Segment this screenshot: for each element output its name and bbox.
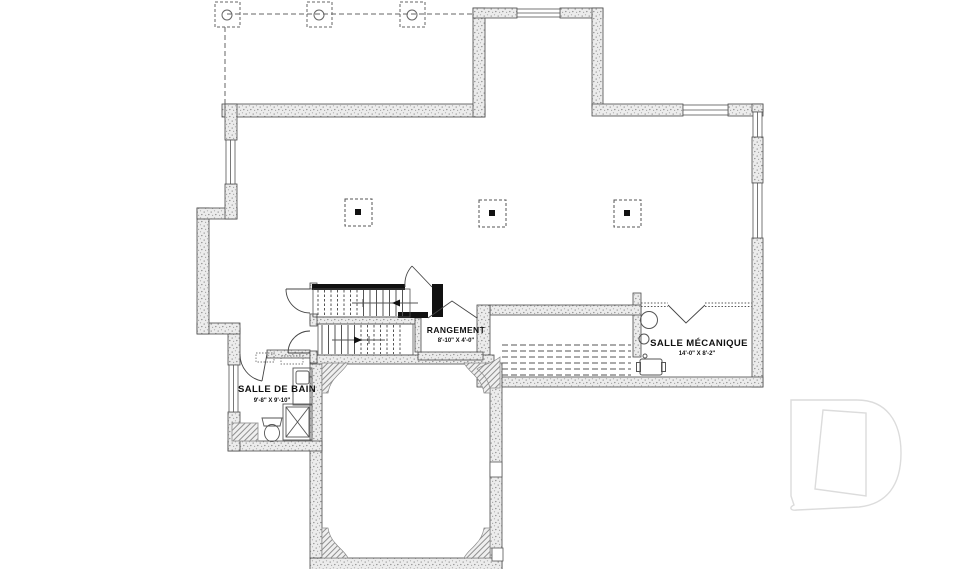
- toilet-icon: [262, 418, 282, 442]
- furnace-icon: [637, 359, 666, 375]
- column-footing-icon: [345, 199, 372, 226]
- storage-label: RANGEMENT: [427, 325, 486, 335]
- deck-outline-above: [215, 2, 473, 104]
- window-bathroom: [229, 365, 238, 412]
- water-heater-icon: [641, 312, 658, 329]
- column-footing-icon: [614, 200, 641, 227]
- window-top-bump: [517, 9, 560, 17]
- shower-icon: [283, 404, 312, 440]
- drummond-d-logo-icon: [791, 400, 901, 510]
- foundation-walls: [197, 8, 763, 569]
- window-right-2: [753, 183, 762, 238]
- pipe-dot-icon: [643, 354, 647, 358]
- mechanical-size: 14'-0" X 8'-2": [679, 351, 716, 357]
- bathroom-size: 9'-8" X 9'-10": [254, 398, 291, 404]
- window-right-1: [753, 112, 762, 137]
- corner-pad: [322, 363, 348, 393]
- mechanical-label: SALLE MÉCANIQUE: [650, 338, 748, 349]
- bathroom-label: SALLE DE BAIN: [238, 384, 316, 395]
- door-stair-left-upper: [286, 289, 310, 313]
- bath-mat-icon: [232, 423, 258, 441]
- door-stair-top: [405, 266, 432, 287]
- storage-size: 8'-10" X 4'-0": [438, 338, 475, 344]
- window-left-upper: [226, 140, 235, 184]
- door-bathroom: [240, 354, 267, 381]
- storage-shelf-lines: [502, 345, 631, 375]
- window-top-right: [683, 105, 728, 115]
- column-footing-icon: [479, 200, 506, 227]
- floor-plan-canvas: SALLE DE BAIN 9'-8" X 9'-10" RANGEMENT 8…: [0, 0, 960, 569]
- corner-pad: [464, 528, 490, 558]
- foundation-pads: [322, 357, 500, 558]
- floor-plan-drawing: SALLE DE BAIN 9'-8" X 9'-10" RANGEMENT 8…: [0, 0, 960, 569]
- steel-columns: [345, 199, 641, 227]
- corner-pad: [322, 528, 348, 558]
- double-door-mechanical: [668, 305, 705, 323]
